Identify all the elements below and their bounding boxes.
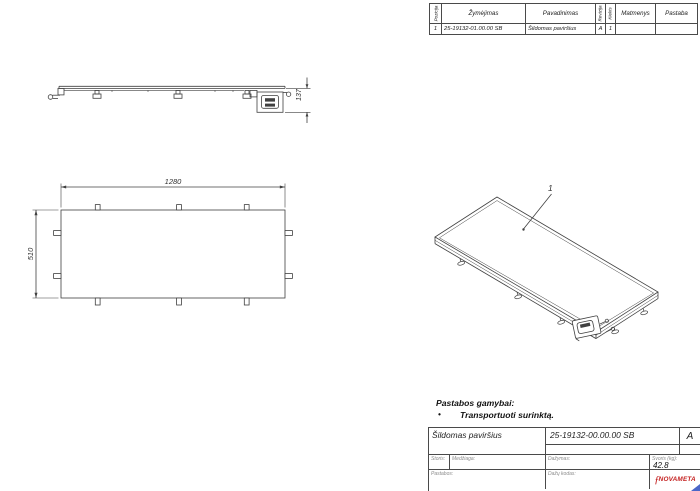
title-revision: A [679, 428, 700, 444]
title-empty-rev-cell [679, 444, 700, 454]
parts-col-pastaba: Pastaba [655, 4, 697, 23]
parts-col-pozicija: Pozicija [430, 4, 441, 23]
title-dazu-kodas-cell: Dažų kodas: [545, 469, 649, 489]
parts-col-matmenys: Matmenys [615, 4, 655, 23]
iso-item-number: 1 [548, 183, 553, 193]
parts-row-matmenys [615, 23, 655, 34]
dim-plan-depth: 510 [26, 242, 36, 266]
parts-col-revizija: Revizija [595, 4, 605, 23]
parts-row-pavadinimas: Šildomas paviršius [525, 23, 595, 34]
side-view-drawing [48, 86, 291, 112]
parts-table: Pozicija Žymėjimas Pavadinimas Revizija … [429, 3, 698, 35]
production-notes: Pastabos gamybai: • Transportuoti surink… [436, 398, 696, 420]
parts-row-pozicija: 1 [430, 23, 441, 34]
title-empty-cell [545, 444, 679, 454]
notes-title: Pastabos gamybai: [436, 398, 696, 408]
parts-col-pavadinimas: Pavadinimas [525, 4, 595, 23]
side-left-hook [48, 88, 64, 99]
title-pastabos-cell: Pastabos: [429, 469, 545, 489]
title-storis-cell: Storis: [429, 454, 449, 469]
notes-item: Transportuoti surinktą. [460, 410, 554, 420]
title-svoris-cell: Svoris (kg): 42.8 [649, 454, 700, 469]
parts-row-pastaba [655, 23, 697, 34]
title-medziaga-cell: Medžiaga: [449, 454, 545, 469]
side-right-hook [283, 92, 291, 96]
title-block: Šildomas paviršius 25-19132-00.00.00 SB … [428, 427, 700, 491]
novameta-logo-text: NOVAMETA [659, 476, 696, 483]
title-dazymas-cell: Dažymas: [545, 454, 649, 469]
side-feet [93, 90, 251, 98]
parts-col-zymejimas: Žymėjimas [441, 4, 525, 23]
title-part-name: Šildomas paviršius [429, 428, 545, 454]
plan-view-drawing [54, 205, 293, 305]
page-corner-marker [691, 484, 700, 491]
notes-bullet: • [436, 410, 460, 420]
parts-row-zymejimas: 25-19132-01.00.00 SB [441, 23, 525, 34]
dim-side-height: 137 [295, 83, 305, 107]
weight-value: 42.8 [650, 462, 700, 469]
title-drawing-number: 25-19132-00.00.00 SB [545, 428, 679, 444]
parts-row-revizija: A [595, 23, 605, 34]
iso-view-drawing [435, 194, 658, 342]
parts-row-kiekis: 1 [605, 23, 615, 34]
parts-col-kiekis: Kiekis [605, 4, 615, 23]
side-control-box [250, 90, 283, 112]
drawing-sheet: 1280 510 137 1 Pozicija Žymėjimas Pavadi… [0, 0, 700, 491]
dim-plan-width: 1280 [150, 177, 196, 187]
